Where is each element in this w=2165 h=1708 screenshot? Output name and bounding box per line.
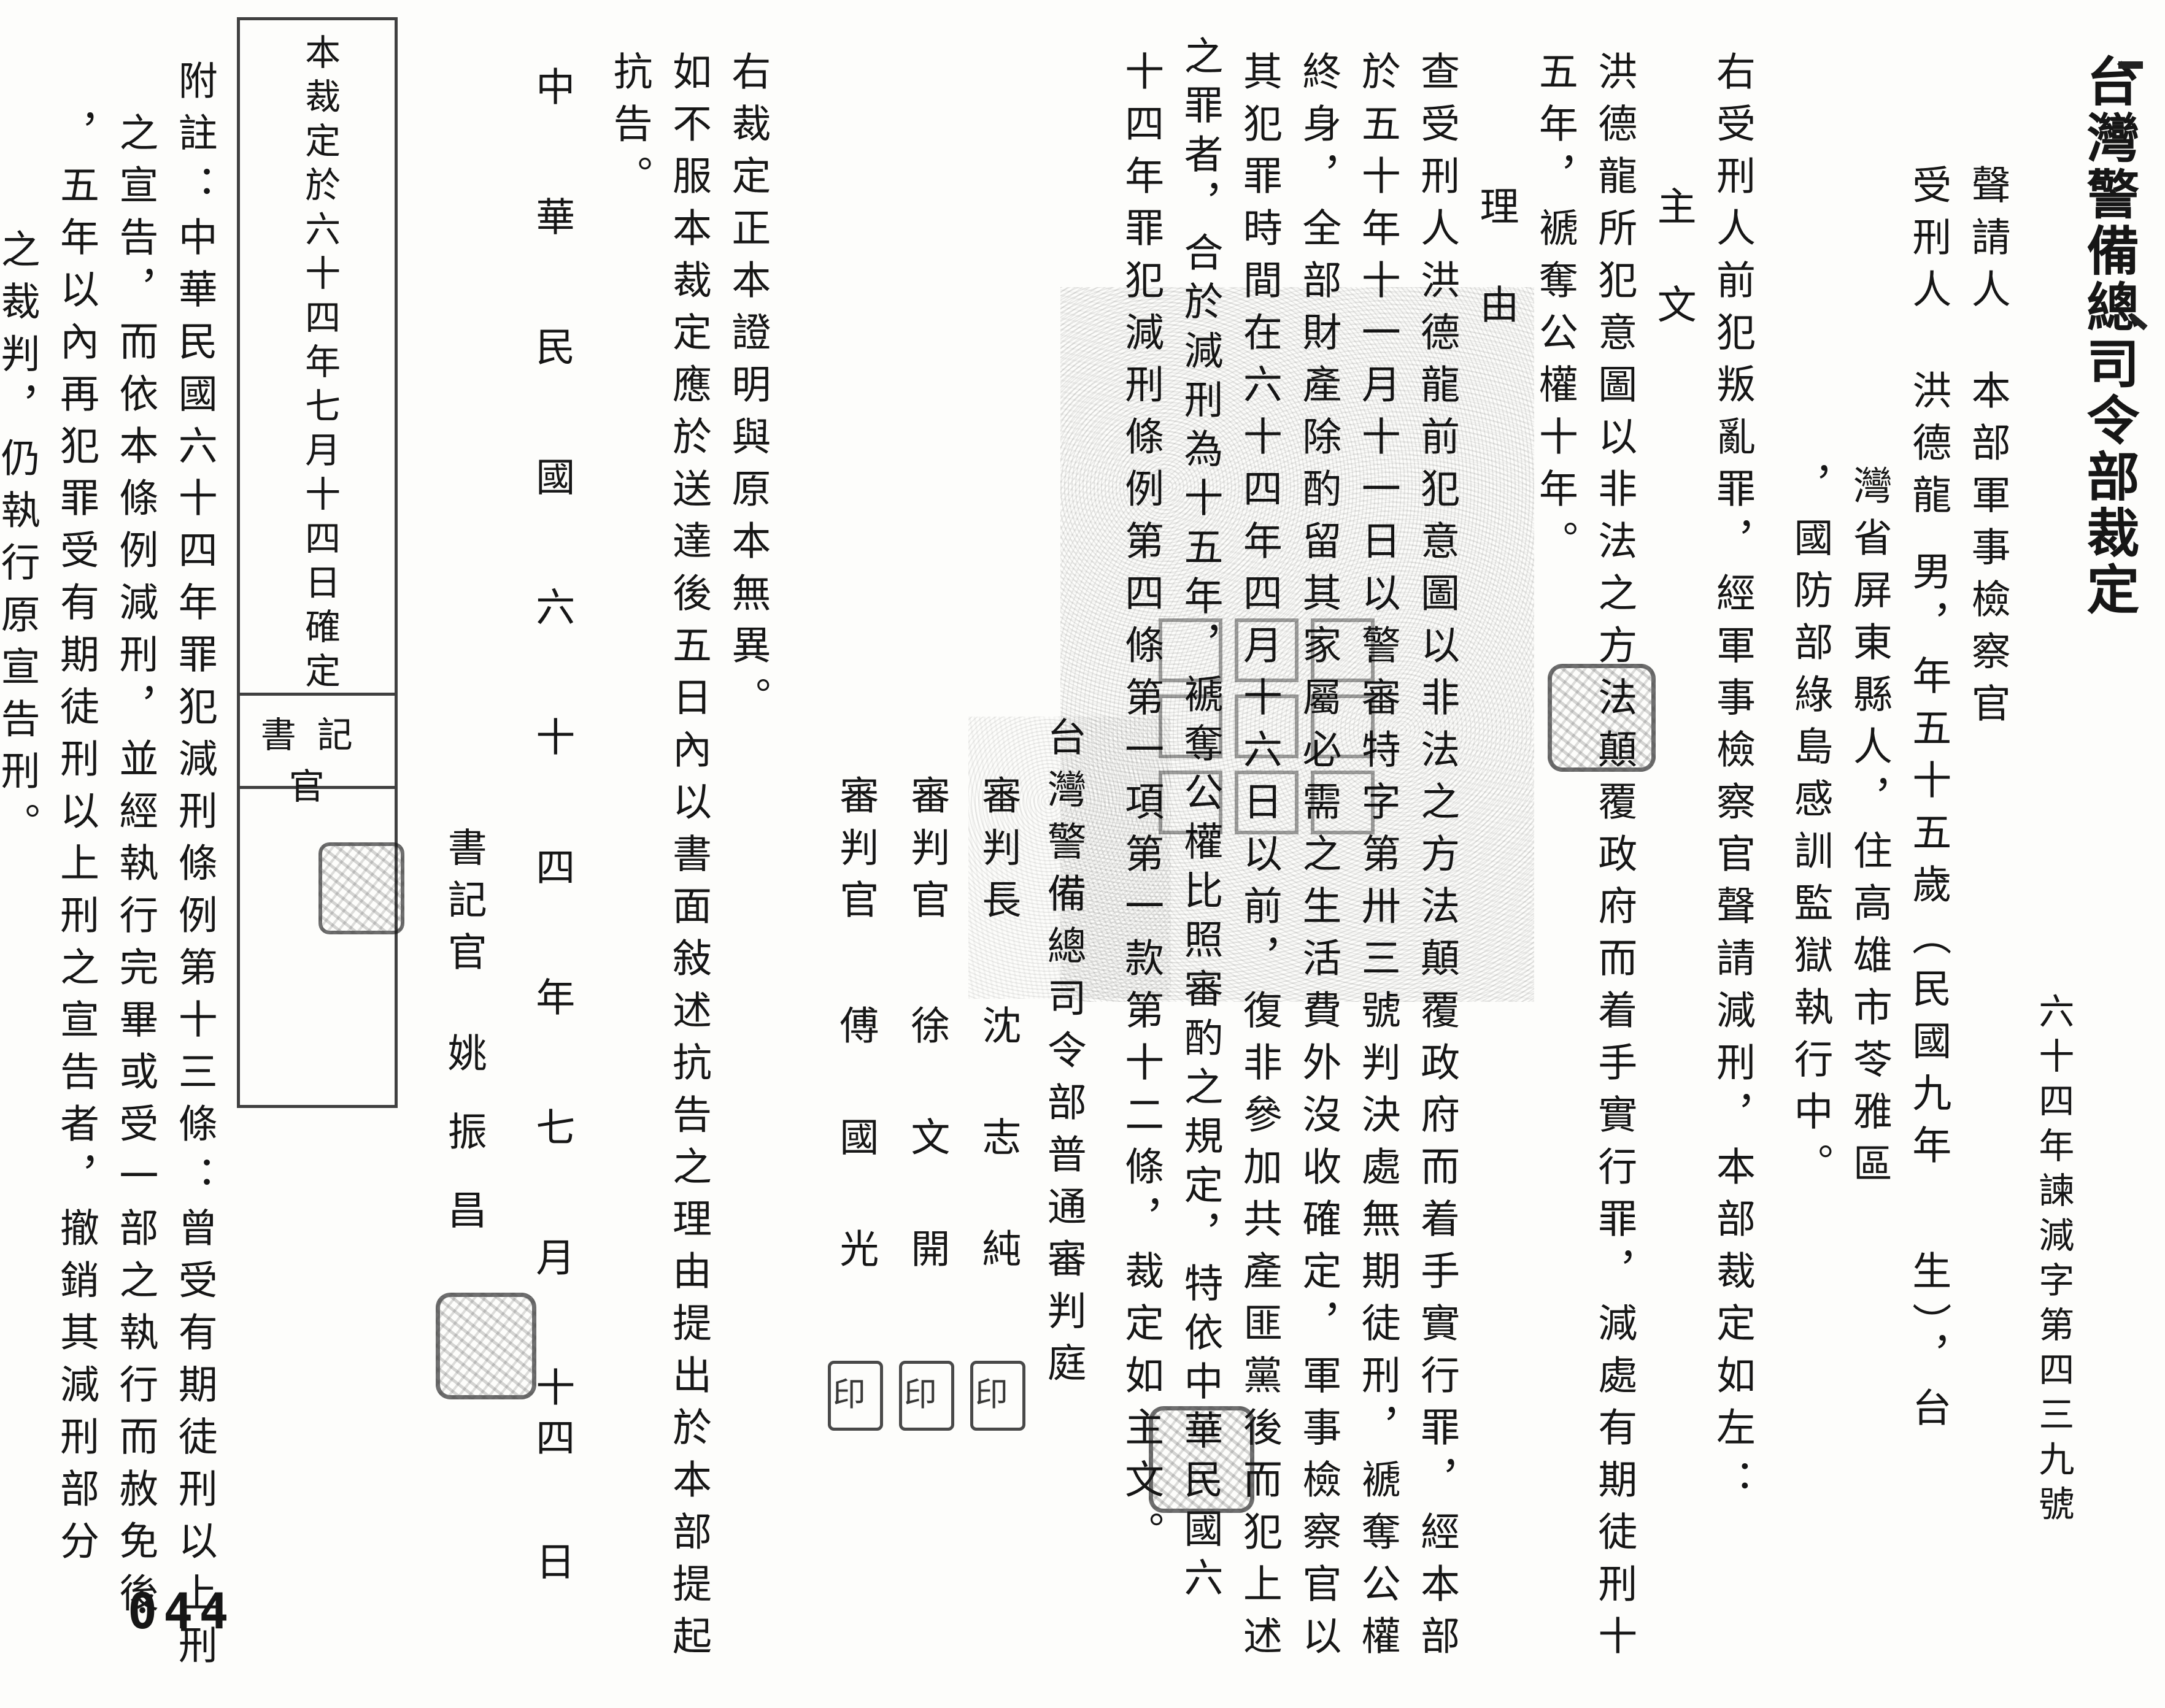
- judge-name: 沈志純: [976, 1005, 1020, 1340]
- judge-name: 徐文開: [905, 1005, 949, 1340]
- name-seal-stamp: 印: [899, 1361, 954, 1431]
- convict-desc-cont1: 灣省屏東縣人，住高雄市苓雅區: [1847, 17, 1890, 1708]
- case-number: 六十四年諫減字第四三九號: [2034, 17, 2073, 1708]
- reason-line-2: 於五十年十一月十一日以警審特字第卅三號判決處無期徒刑，褫奪公權: [1356, 17, 1399, 1708]
- spacer: [551, 1287, 552, 1367]
- date-char: 月: [530, 1237, 574, 1287]
- spacer: [463, 983, 465, 1033]
- document-text-flow: 台灣警備總司令部裁定 六十四年諫減字第四三九號 聲請人本部軍事檢察官 受刑人洪德…: [123, 17, 2137, 1690]
- judge-line: 審判官傅國光印: [828, 17, 883, 1708]
- convict-desc-b: 生），台: [1907, 1250, 1950, 1439]
- clerk-name: 姚振昌: [442, 1033, 486, 1268]
- annotation-line-4: 之裁判，仍執行原宣告刑。: [0, 17, 39, 1708]
- clerk-title: 書記官: [442, 827, 486, 983]
- clerk-box-seal-stamp: [318, 842, 404, 934]
- judge-title: 審判長: [976, 775, 1020, 931]
- date-char: 七: [530, 1107, 574, 1157]
- scan-mark: [2118, 61, 2143, 69]
- court-name: 台灣警備總司令部普通審判庭: [1041, 17, 1084, 1708]
- convict-label: 受刑人: [1907, 164, 1950, 321]
- date-char: 日: [530, 1541, 574, 1591]
- finality-certification-box: 本裁定於六十四年七月十四日確定 書記官: [237, 17, 398, 1108]
- divider: [240, 786, 395, 789]
- annotation-line-1: 附註：中華民國六十四年罪犯減刑條例第十三條：曾受有期徒刑以上刑: [172, 17, 215, 1708]
- scanned-ruling-document: 台灣警備總司令部裁定 六十四年諫減字第四三九號 聲請人本部軍事檢察官 受刑人洪德…: [0, 0, 2165, 1708]
- spacer: [551, 117, 552, 196]
- date-char: 十四: [530, 1367, 574, 1468]
- ruling-date: 中華民國六十四年七月十四日: [530, 17, 573, 1708]
- date-char: 四: [530, 847, 574, 897]
- spacer: [551, 377, 552, 456]
- date-char: 華: [530, 196, 574, 247]
- spacer: [855, 931, 856, 1005]
- applicant-line: 聲請人本部軍事檢察官: [1966, 17, 2009, 1708]
- main-text-label: 主文: [1651, 17, 1694, 1708]
- spacer: [551, 1027, 552, 1107]
- spacer: [997, 931, 998, 1005]
- judge-title: 審判官: [834, 775, 878, 931]
- spacer: [551, 507, 552, 587]
- date-char: 十: [530, 717, 574, 767]
- judge-name: 傅國光: [834, 1005, 878, 1340]
- main-text-2: 五年，褫奪公權十年。: [1533, 17, 1576, 1708]
- applicant-value: 本部軍事檢察官: [1966, 370, 2010, 735]
- appeal-instruction-1: 如不服本裁定應於送達後五日內以書面敍述抗告之理由提出於本部提起: [667, 17, 710, 1708]
- applicant-label: 聲請人: [1966, 164, 2010, 321]
- date-char: 民: [530, 326, 574, 377]
- spacer: [1928, 526, 1929, 551]
- convict-name: 洪德龍: [1907, 370, 1950, 526]
- box-clerk-label: 書記官: [240, 706, 395, 809]
- convict-line: 受刑人洪德龍男，年五十五歲（民國九年生），台: [1907, 17, 1950, 1708]
- main-text-1: 洪德龍所犯意圖以非法之方法顛覆政府而着手實行罪，減處有期徒刑十: [1592, 17, 1635, 1708]
- judge-title: 審判官: [905, 775, 949, 931]
- reason-line-3: 終身，全部財產除酌留其家屬必需之生活費外沒收確定，軍事檢察官以: [1297, 17, 1340, 1708]
- document-title: 台灣警備總司令部裁定: [2078, 17, 2137, 1708]
- ruling-intro: 右受刑人前犯叛亂罪，經軍事檢察官聲請減刑，本部裁定如左：: [1711, 17, 1754, 1708]
- spacer: [551, 247, 552, 326]
- spacer: [551, 897, 552, 977]
- copy-certification: 右裁定正本證明與原本無異。: [726, 17, 769, 1708]
- page-number: 044: [128, 1583, 235, 1640]
- seal-stamp: [1149, 1406, 1254, 1513]
- convict-desc-cont2: ，國防部綠島感訓監獄執行中。: [1788, 17, 1831, 1708]
- spacer: [1928, 1177, 1929, 1250]
- reason-line-1: 查受刑人洪德龍前犯意圖以非法之方法顛覆政府而着手實行罪，經本部: [1415, 17, 1458, 1708]
- annotation-line-3: ，五年以內再犯罪受有期徒刑以上刑之宣告者，撤銷其減刑部分: [55, 17, 98, 1708]
- judge-line: 審判官徐文開印: [899, 17, 954, 1708]
- finality-statement: 本裁定於六十四年七月十四日確定: [293, 34, 345, 696]
- spacer: [1987, 321, 1988, 370]
- spacer: [551, 1157, 552, 1237]
- divider: [240, 693, 395, 696]
- spacer: [551, 767, 552, 847]
- date-char: 年: [530, 977, 574, 1027]
- spacer: [926, 931, 927, 1005]
- spacer: [551, 1468, 552, 1541]
- spacer: [551, 637, 552, 717]
- name-seal-stamp: 印: [828, 1361, 883, 1431]
- clerk-seal-stamp: [436, 1293, 536, 1399]
- annotation-line-2: 之宣告，而依本條例減刑，並經執行完畢或受一部之執行而赦免後: [114, 17, 156, 1708]
- date-char: 中: [530, 66, 574, 117]
- seal-stamp: [1548, 664, 1656, 772]
- judge-line: 審判長沈志純印: [970, 17, 1025, 1708]
- date-char: 國: [530, 456, 574, 507]
- date-char: 六: [530, 587, 574, 637]
- convict-desc-a: 男，年五十五歲（民國九年: [1907, 551, 1950, 1177]
- clerk-line: 書記官姚振昌: [414, 17, 514, 1708]
- spacer: [1928, 321, 1929, 370]
- appeal-instruction-2: 抗告。: [608, 17, 650, 1708]
- reason-label: 理由: [1474, 17, 1517, 1708]
- name-seal-stamp: 印: [970, 1361, 1025, 1431]
